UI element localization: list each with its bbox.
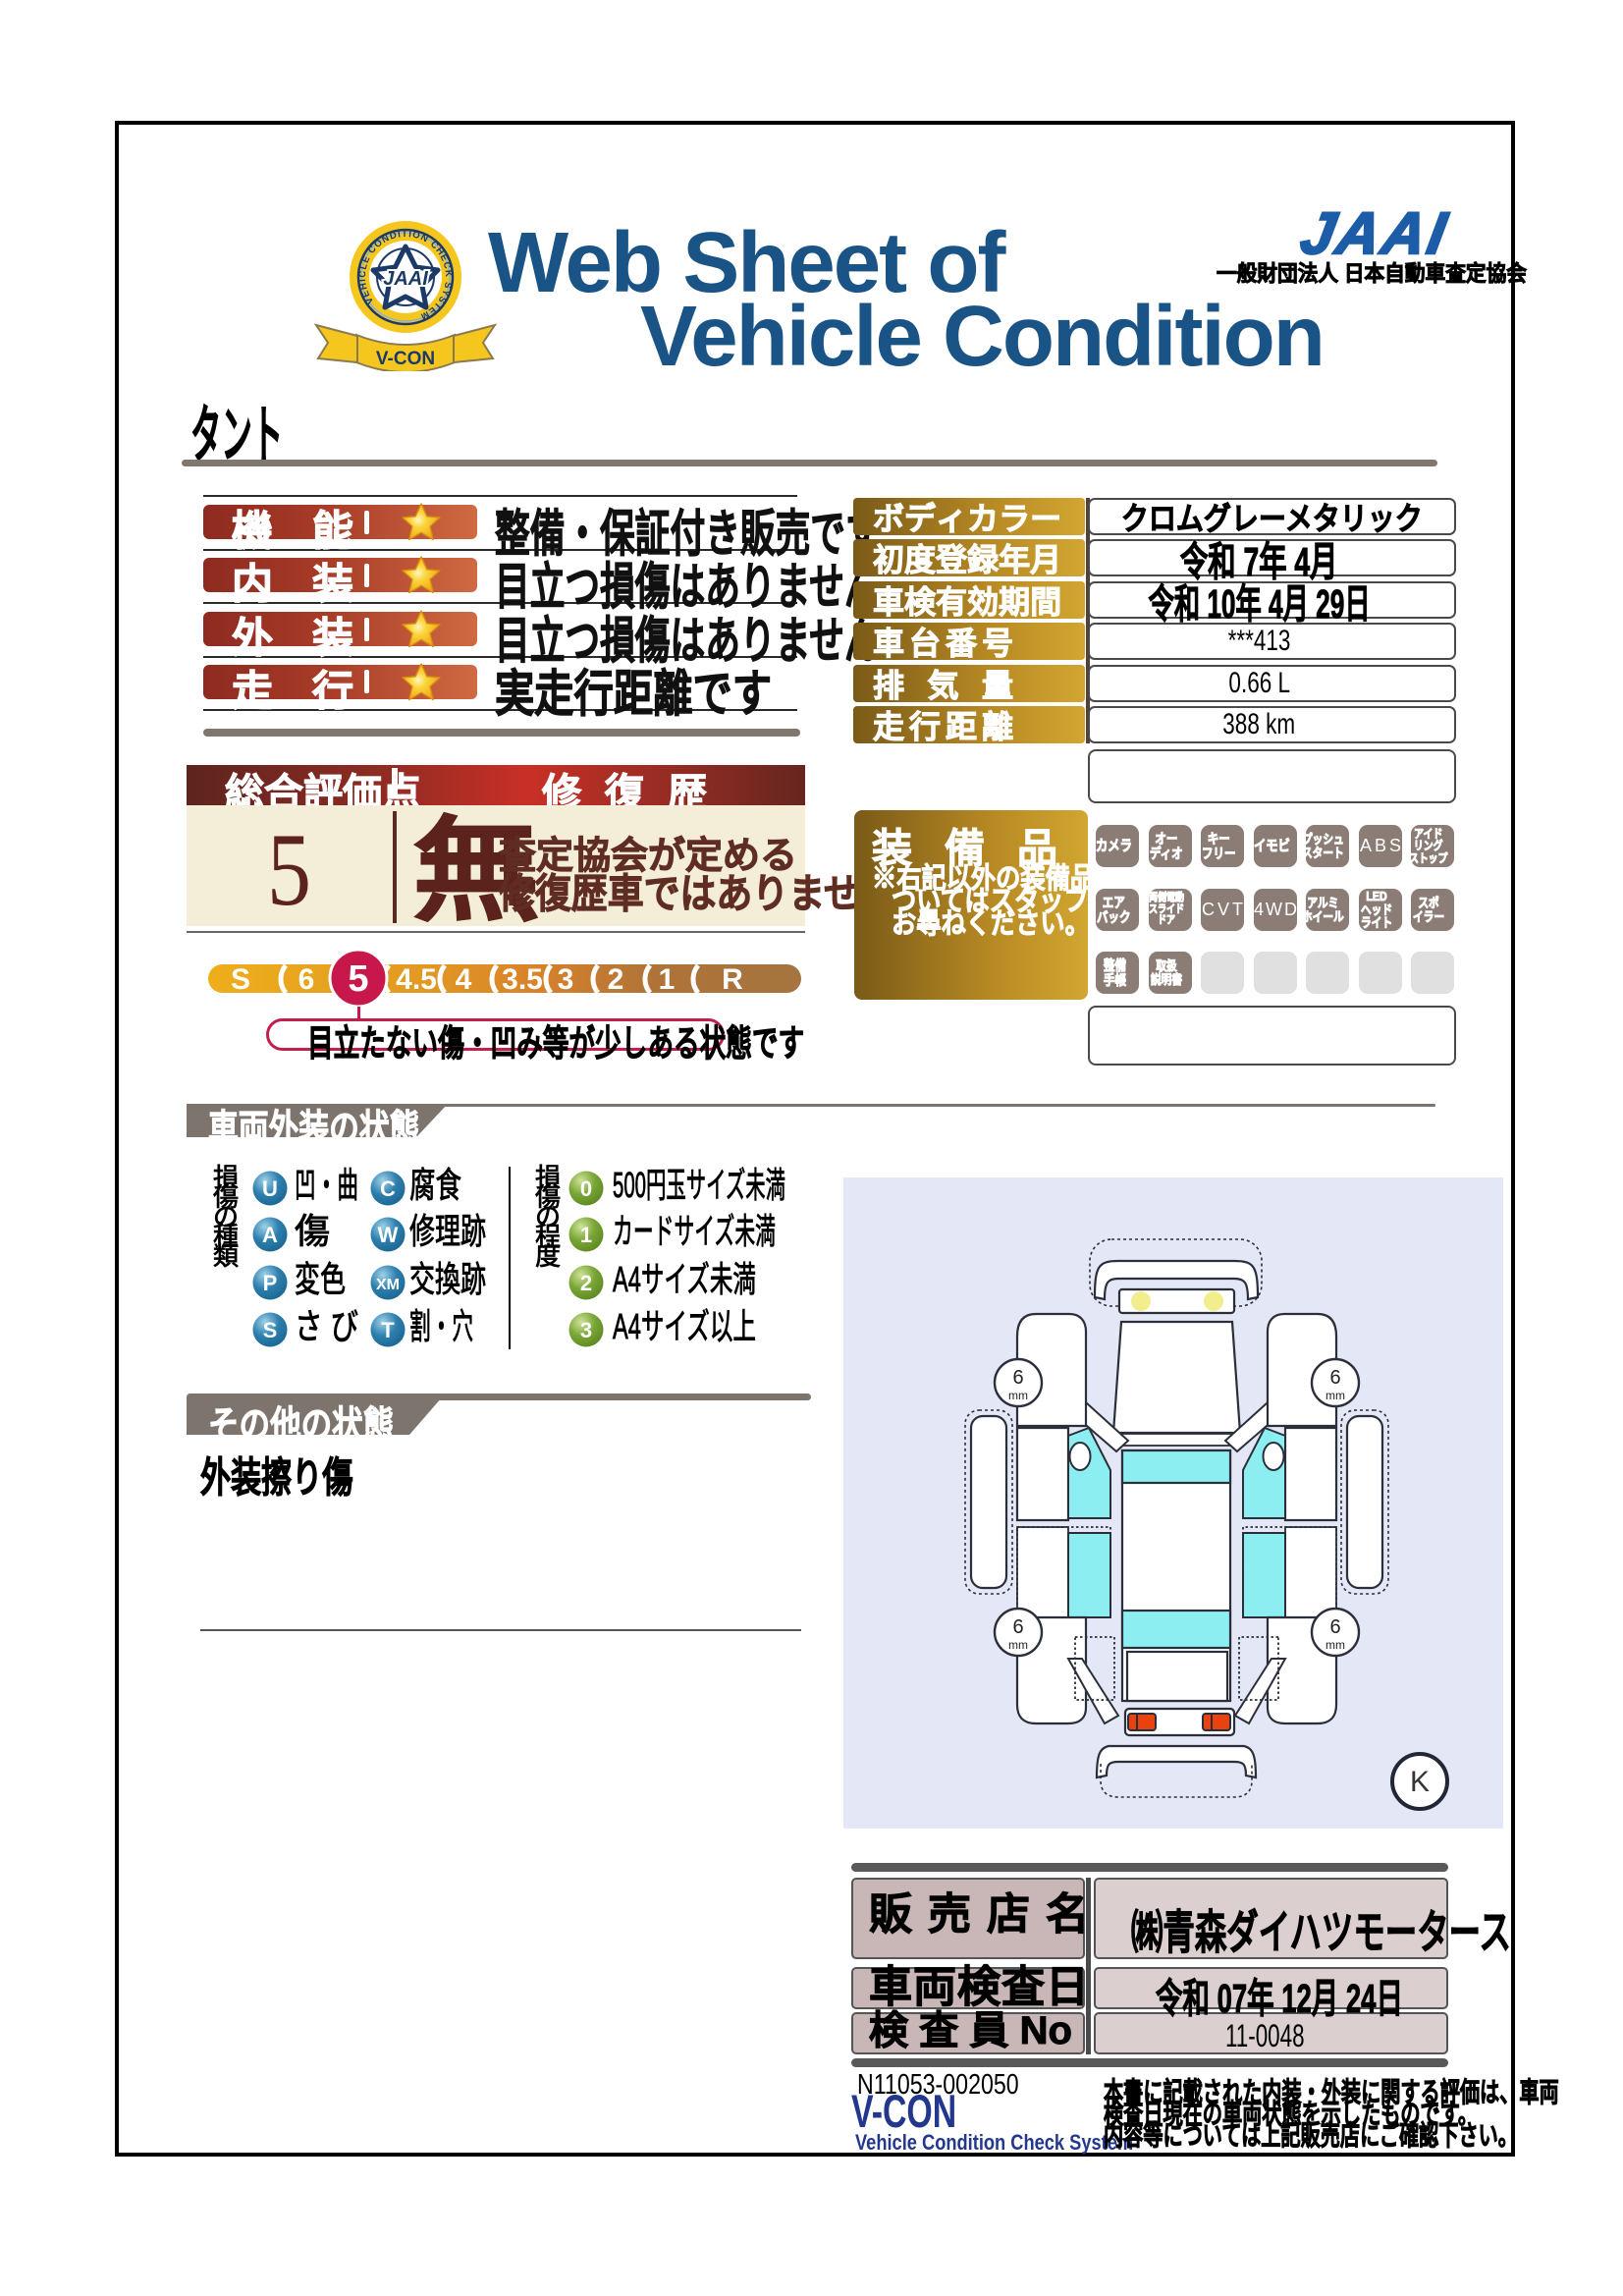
svg-text:カードサイズ未満: カードサイズ未満 [613, 1211, 776, 1251]
svg-text:割・穴: 割・穴 [409, 1306, 473, 1346]
svg-text:1: 1 [580, 1223, 592, 1247]
svg-text:S: S [231, 963, 250, 996]
svg-text:3.5: 3.5 [502, 963, 543, 996]
svg-text:2: 2 [580, 1271, 592, 1295]
svg-text:6: 6 [1012, 1367, 1023, 1389]
svg-text:傷: 傷 [295, 1211, 330, 1251]
svg-text:腐食: 腐食 [409, 1165, 461, 1205]
svg-text:6: 6 [298, 963, 315, 996]
svg-text:3: 3 [558, 963, 574, 996]
svg-text:500円玉サイズ未満: 500円玉サイズ未満 [613, 1165, 785, 1205]
svg-text:6: 6 [1329, 1367, 1340, 1389]
svg-text:T: T [381, 1318, 395, 1342]
svg-text:JAAI: JAAI [383, 268, 428, 290]
svg-text:類: 類 [213, 1241, 239, 1271]
svg-text:さ び: さ び [295, 1306, 358, 1346]
svg-text:C: C [380, 1176, 396, 1201]
svg-text:A4サイズ未満: A4サイズ未満 [613, 1259, 756, 1299]
svg-text:A4サイズ以上: A4サイズ以上 [613, 1306, 756, 1346]
svg-text:5: 5 [348, 958, 368, 1000]
svg-text:変色: 変色 [295, 1259, 346, 1299]
svg-text:交換跡: 交換跡 [409, 1259, 486, 1299]
svg-text:修理跡: 修理跡 [409, 1211, 486, 1251]
svg-text:3: 3 [580, 1318, 592, 1342]
svg-text:6: 6 [1012, 1616, 1023, 1638]
svg-text:S: S [263, 1318, 278, 1342]
svg-text:K: K [1410, 1766, 1430, 1798]
svg-text:1: 1 [659, 963, 676, 996]
svg-text:W: W [378, 1223, 399, 1247]
svg-text:2: 2 [608, 963, 624, 996]
svg-text:R: R [722, 963, 743, 996]
svg-text:6: 6 [1329, 1616, 1340, 1638]
svg-text:mm: mm [1008, 1389, 1028, 1402]
svg-text:U: U [262, 1176, 278, 1201]
svg-text:mm: mm [1325, 1389, 1345, 1402]
svg-text:XM: XM [376, 1277, 400, 1293]
svg-text:P: P [263, 1271, 278, 1295]
svg-text:0: 0 [580, 1176, 592, 1201]
svg-text:度: 度 [535, 1241, 561, 1271]
svg-text:mm: mm [1325, 1638, 1345, 1652]
svg-text:4: 4 [456, 963, 472, 996]
svg-text:A: A [262, 1223, 278, 1247]
svg-text:V-CON: V-CON [376, 349, 435, 369]
svg-text:凹・曲: 凹・曲 [295, 1165, 358, 1205]
svg-text:4.5: 4.5 [396, 963, 437, 996]
svg-text:mm: mm [1008, 1638, 1028, 1652]
